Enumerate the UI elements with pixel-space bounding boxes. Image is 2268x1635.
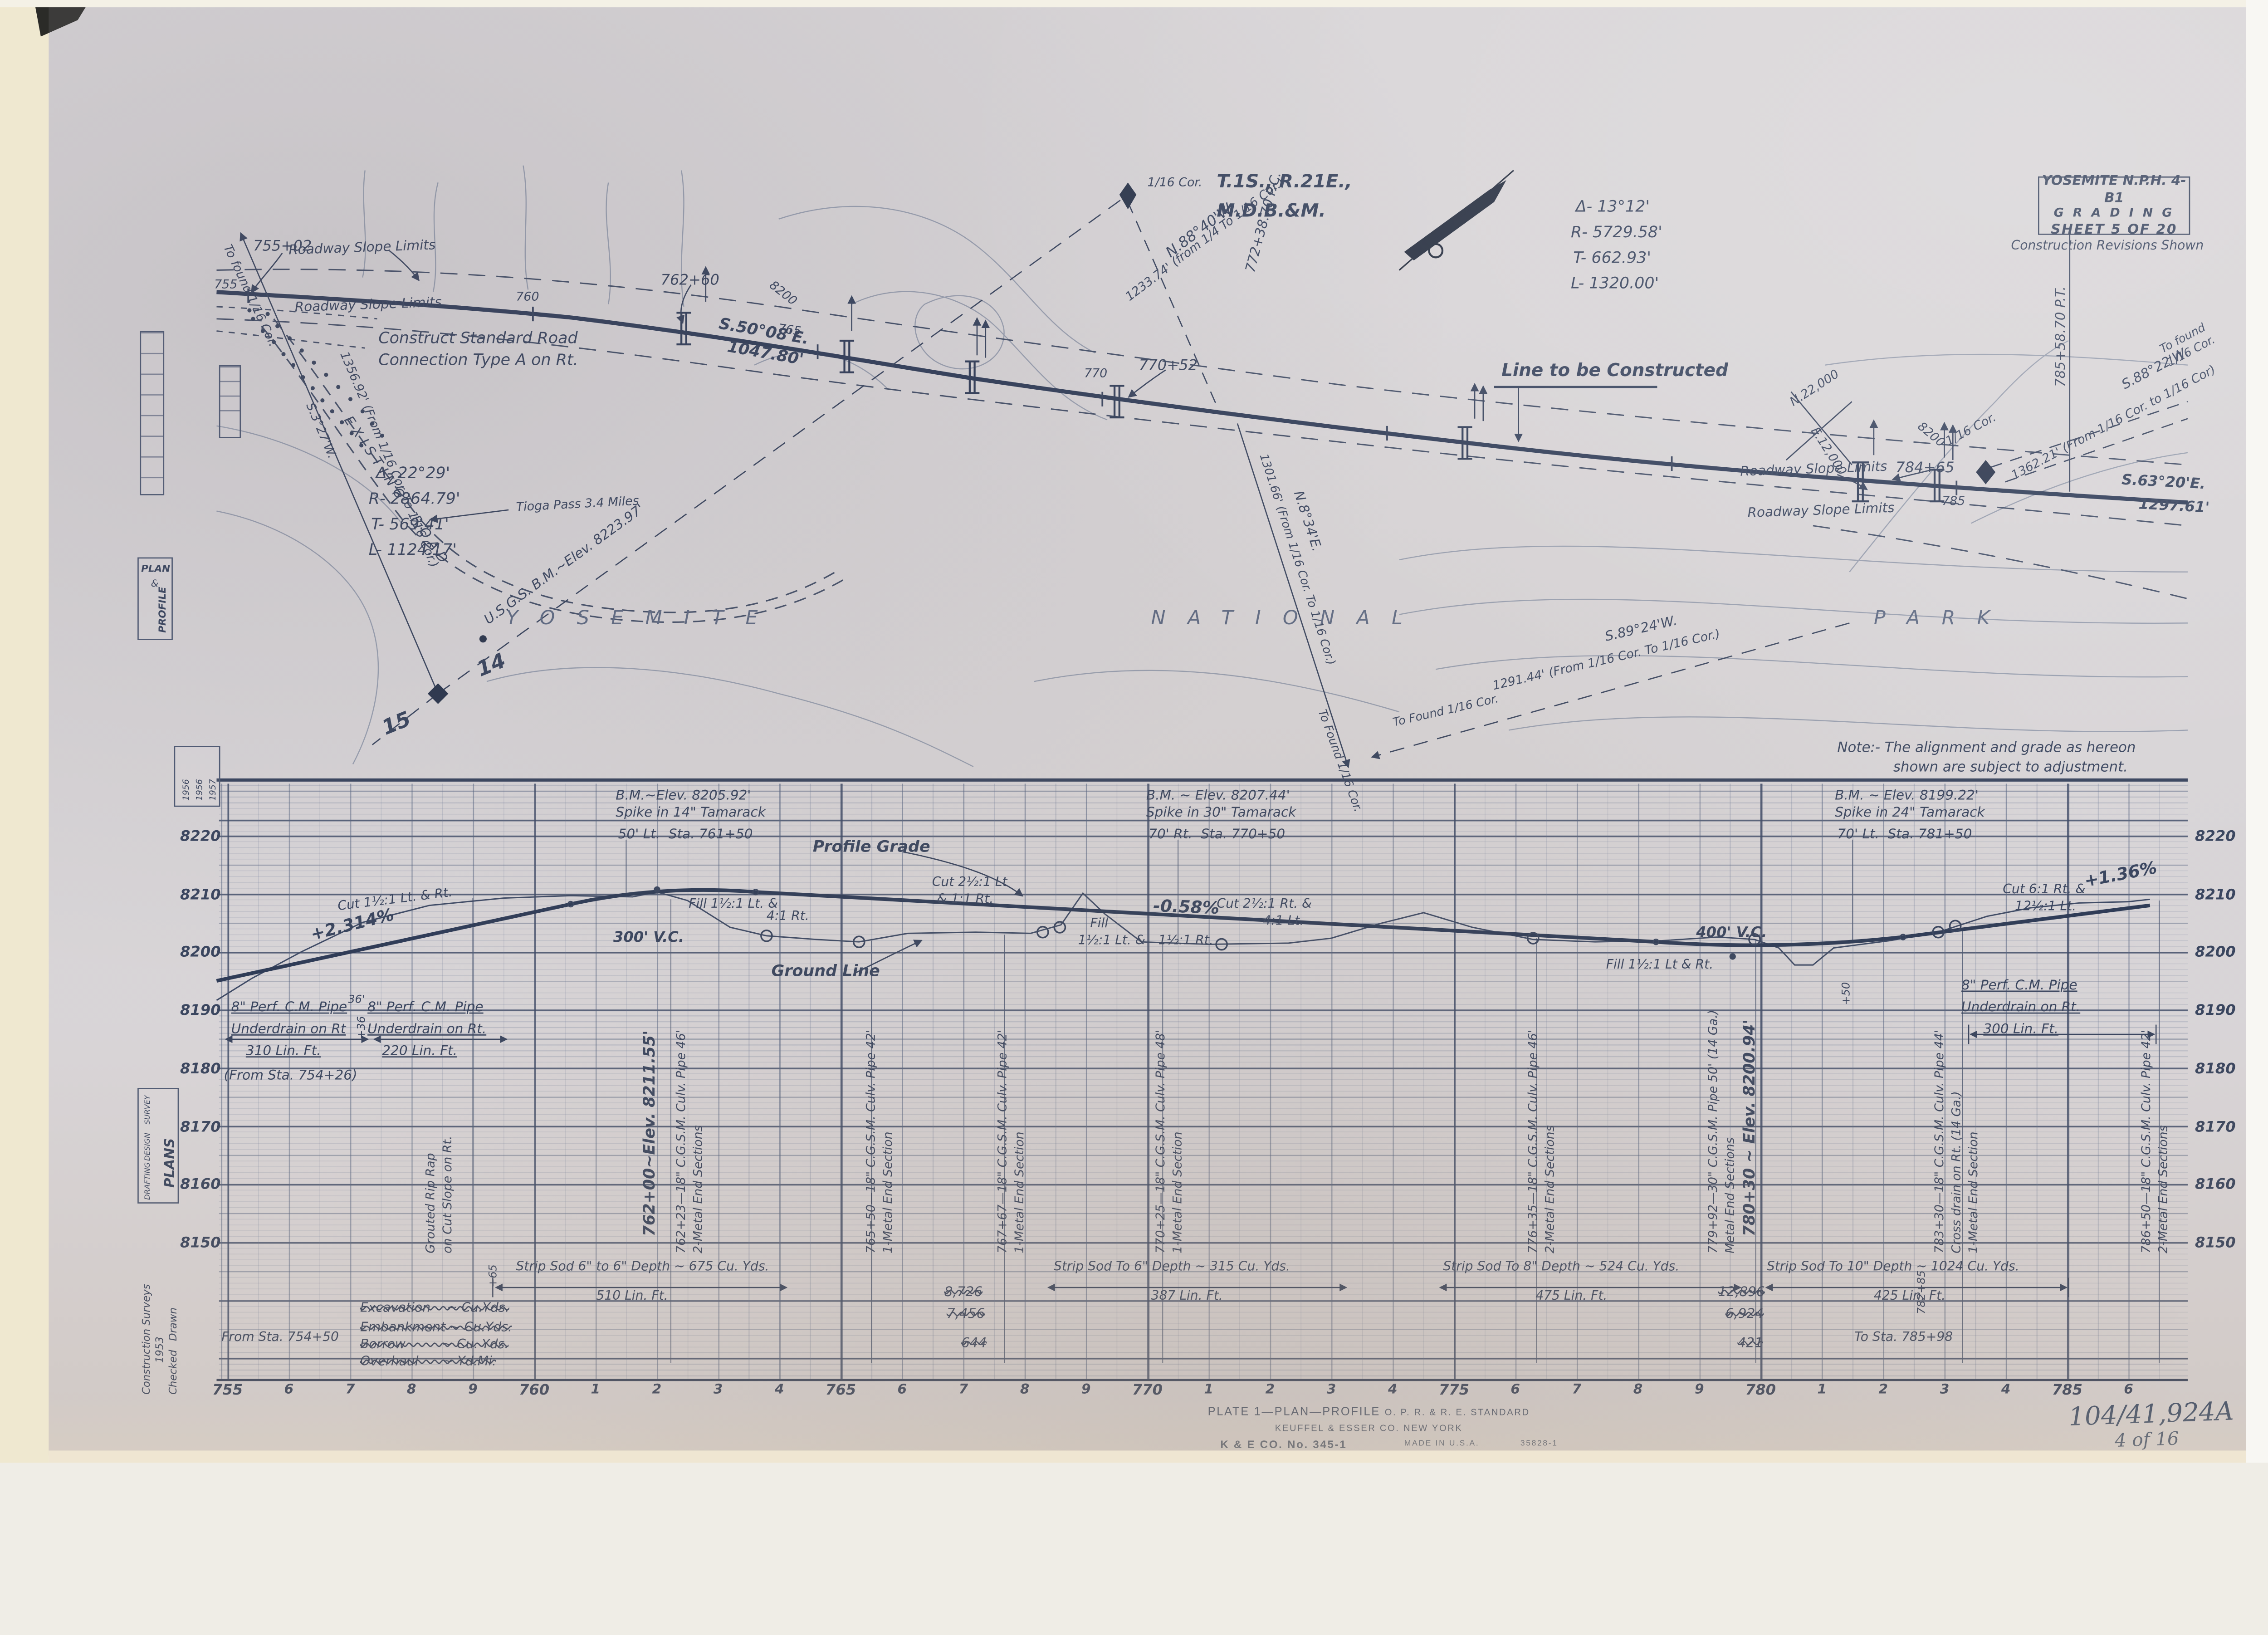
title-line-2: G R A D I N G: [2039, 206, 2189, 222]
sod3-2: 475 Lin. Ft.: [1535, 1290, 1607, 1303]
culv-783-3: 1-Metal End Section: [1969, 1131, 1981, 1253]
station-label-7: 7: [959, 1381, 968, 1397]
cut-773-2: 4:1 Lt.: [1263, 915, 1304, 929]
fill-763-2: 4:1 Rt.: [767, 910, 809, 924]
station-label-3: 3: [714, 1381, 723, 1397]
sta-770-52: 770+52: [1139, 358, 1198, 373]
cut-773-1: Cut 2½:1 Rt. &: [1217, 898, 1312, 912]
sod3-1: Strip Sod To 8" Depth ~ 524 Cu. Yds.: [1443, 1261, 1679, 1274]
annotation-arrows: [226, 852, 2156, 1297]
station-label-6: 6: [2124, 1381, 2133, 1397]
stamp-box: [219, 365, 241, 438]
note-line-2: shown are subject to adjustment.: [1893, 759, 2128, 774]
vc-300: 300' V.C.: [613, 930, 684, 945]
profile-culvert-station-lines: [473, 840, 2159, 1363]
station-label-765: 765: [826, 1381, 856, 1399]
station-label-775: 775: [1439, 1381, 1469, 1399]
curve2-r: R- 5729.58': [1571, 225, 1662, 242]
line-to-be-constructed: Line to be Constructed: [1501, 362, 1728, 381]
underdrain2-2: Underdrain on Rt.: [367, 1022, 486, 1036]
construction-year: 1953: [156, 1336, 166, 1363]
sod4-1: Strip Sod To 10" Depth ~ 1024 Cu. Yds.: [1767, 1261, 2019, 1274]
culv-767-1: 767+67—18" C.G.S.M. Culv. Pipe 42': [998, 1030, 1011, 1253]
sta-770-plan: 770: [1084, 369, 1107, 382]
riprap-1: Grouted Rip Rap: [426, 1153, 439, 1253]
tab-survey: SURVEY: [145, 1095, 152, 1124]
culv-786-2: 2-Metal End Sections: [2159, 1125, 2171, 1253]
station-label-2: 2: [1879, 1381, 1888, 1397]
qty-num-2: 7,456: [947, 1307, 985, 1321]
road-alignment: [216, 289, 2187, 503]
contour-lines: [216, 166, 2187, 767]
plate-name: PLATE 1—PLAN—PROFILE: [1208, 1405, 1380, 1419]
park-word-3: PARK: [1874, 608, 2012, 629]
elevation-label-8180: 8180: [180, 1060, 221, 1077]
cut-765-2: & 1:1 Rt.: [937, 893, 993, 907]
maker-line: KEUFFEL & ESSER CO. NEW YORK: [1217, 1423, 1521, 1434]
fill-763-1: Fill 1½:1 Lt. &: [689, 898, 778, 912]
station-label-3: 3: [1940, 1381, 1950, 1397]
elevation-label-8160: 8160: [2195, 1176, 2236, 1193]
tab-plan: PLAN: [141, 565, 170, 575]
elevation-label-8200: 8200: [180, 944, 221, 961]
underdrain2-1: 8" Perf. C.M. Pipe: [367, 1000, 484, 1014]
elevation-label-8190: 8190: [180, 1002, 221, 1019]
station-label-4: 4: [1388, 1381, 1398, 1397]
park-word-1: YOSEMITE: [506, 608, 780, 629]
pt-785-58-70: 785+58.70 P.T.: [2054, 286, 2068, 387]
culv-765-2: 1-Metal End Section: [883, 1131, 896, 1253]
qty-num-5: 6,924: [1725, 1307, 1764, 1321]
checked: Checked: [169, 1350, 180, 1395]
culv-770-2: 1-Metal End Section: [1173, 1131, 1186, 1253]
curve2-t: T- 662.93': [1573, 251, 1651, 268]
bm3-3: 70' Lt. Sta. 781+50: [1837, 827, 1972, 842]
bm2-2: Spike in 30" Tamarack: [1146, 806, 1296, 820]
bm3-2: Spike in 24" Tamarack: [1835, 806, 1984, 820]
product-line: K & E CO. No. 345-1: [1193, 1439, 1375, 1451]
tick-plus36: +36: [358, 1016, 369, 1039]
culv-779-2: Metal End Sections: [1725, 1137, 1738, 1253]
bm2-3: 70' Rt. Sta. 770+50: [1149, 827, 1285, 842]
underdrain3-3: 300 Lin. Ft.: [1983, 1022, 2058, 1036]
year-1: 1956: [182, 779, 191, 801]
station-label-1: 1: [1817, 1381, 1827, 1397]
sta-755-plan: 755: [214, 280, 237, 293]
elevation-label-8220: 8220: [2195, 827, 2236, 845]
tab-design: DESIGN: [145, 1133, 152, 1161]
sod2-2: 387 Lin. Ft.: [1151, 1290, 1223, 1303]
culv-762-elev: 762+00~Elev. 8211.55': [642, 1030, 659, 1236]
station-label-760: 760: [519, 1381, 549, 1399]
qty-num-1: 8,726: [944, 1285, 982, 1299]
riprap-2: on Cut Slope on Rt.: [443, 1136, 455, 1253]
sta-785-plan: 785: [1942, 496, 1965, 509]
underdrain3-1: 8" Perf. C.M. Pipe: [1961, 979, 2077, 993]
plate-title: PLATE 1—PLAN—PROFILE O. P. R. & R. E. ST…: [1168, 1405, 1569, 1419]
elevation-label-8150: 8150: [180, 1234, 221, 1251]
made-in: MADE IN U.S.A.: [1387, 1439, 1496, 1448]
sod2-1: Strip Sod To 6" Depth ~ 315 Cu. Yds.: [1054, 1261, 1290, 1274]
qty-borrow: Borrow ~ Cu. Yds.: [360, 1339, 508, 1352]
station-label-755: 755: [212, 1381, 243, 1399]
plan-profile-sheet: YOSEMITE N.P.H. 4-B1 G R A D I N G SHEET…: [0, 0, 2268, 1463]
culv-786-1: 786+50—18" C.G.S.M. Culv. Pipe 42': [2141, 1030, 2154, 1253]
sta-762-60: 762+60: [661, 273, 719, 288]
underdrain1-2: Underdrain on Rt: [231, 1022, 346, 1036]
station-label-1: 1: [1204, 1381, 1213, 1397]
to-sta: To Sta. 785+98: [1854, 1331, 1953, 1345]
station-label-785: 785: [2052, 1381, 2082, 1399]
curve1-r: R- 2864.79': [369, 492, 460, 509]
station-label-4: 4: [2001, 1381, 2011, 1397]
elevation-label-8210: 8210: [180, 886, 221, 903]
elevation-label-8220: 8220: [180, 827, 221, 845]
cut-785-2: 12½:1 Lt.: [2015, 901, 2076, 914]
sta-760-plan: 760: [516, 292, 539, 305]
station-label-9: 9: [468, 1381, 478, 1397]
station-label-2: 2: [1266, 1381, 1275, 1397]
elevation-label-8160: 8160: [180, 1176, 221, 1193]
fill-769-1: Fill: [1090, 918, 1108, 931]
construction-note: Construction Surveys: [142, 1284, 153, 1395]
title-subtitle: Construction Revisions Shown: [2010, 239, 2204, 253]
culv-780-elev: 780+30 ~ Elev. 8200.94': [1742, 1019, 1759, 1236]
culv-776-1: 776+35—18" C.G.S.M. Culv. Pipe 46': [1528, 1030, 1541, 1253]
station-label-8: 8: [1633, 1381, 1643, 1397]
culv-783-2: Cross drain on Rt. (14 Ga.): [1952, 1091, 1965, 1253]
tab-drafting: DRAFTING: [145, 1162, 152, 1200]
station-label-8: 8: [1020, 1381, 1030, 1397]
ground-line-label: Ground Line: [772, 964, 880, 980]
section-lines: [241, 195, 2188, 767]
elevation-label-8170: 8170: [2195, 1118, 2236, 1135]
construct-note-1: Construct Standard Road: [378, 331, 577, 348]
fill-777: Fill 1½:1 Lt & Rt.: [1606, 959, 1713, 973]
year-3: 1957: [209, 779, 218, 801]
sta-784-65: 784+65: [1896, 460, 1954, 475]
vc-400: 400' V.C.: [1696, 925, 1767, 940]
bm1-1: B.M.~Elev. 8205.92': [616, 788, 751, 803]
note-line-1: Note:- The alignment and grade as hereon: [1837, 740, 2136, 754]
qty-embankment: Embankment ~ Cu.Yds.: [360, 1322, 512, 1335]
plan-leaders: [252, 251, 1932, 520]
tab-profile: PROFILE: [158, 587, 169, 632]
dist-1297: 1297.61': [2138, 496, 2210, 515]
sheet-linework: [0, 0, 2268, 1463]
title-line-3: SHEET 5 OF 20: [2039, 222, 2189, 239]
title-line-1: YOSEMITE N.P.H. 4-B1: [2039, 173, 2189, 206]
profile-grade-label: Profile Grade: [813, 840, 930, 857]
culv-762-2: 2-Metal End Sections: [694, 1125, 706, 1253]
station-label-7: 7: [346, 1381, 355, 1397]
fill-769-2: 1½:1 Lt. &: [1078, 935, 1145, 948]
underdrain1-4: (From Sta. 754+26): [224, 1068, 357, 1082]
cut-765-1: Cut 2½:1 Lt: [932, 876, 1007, 890]
park-word-2: NATIONAL: [1151, 608, 1425, 629]
qty-num-6: 421: [1737, 1336, 1763, 1350]
elevation-label-8190: 8190: [2195, 1002, 2236, 1019]
sheet-id-page: 4 of 16: [2114, 1428, 2179, 1452]
scan-bottom-edge: [49, 1450, 2246, 1463]
qty-num-3: 644: [961, 1336, 987, 1350]
plate-standard: O. P. R. & R. E. STANDARD: [1385, 1407, 1530, 1418]
curve2-l: L- 1320.00': [1571, 276, 1659, 293]
station-label-6: 6: [284, 1381, 294, 1397]
culv-765-1: 765+50—18" C.G.S.M. Culv. Pipe 42': [866, 1030, 879, 1253]
qty-excavation: Excavation ~ Cu.Yds.: [360, 1302, 509, 1316]
bm2-1: B.M. ~ Elev. 8207.44': [1146, 788, 1290, 803]
culv-767-2: 1-Metal End Section: [1015, 1131, 1027, 1253]
station-label-3: 3: [1327, 1381, 1336, 1397]
from-sta: From Sta. 754+50: [221, 1331, 339, 1345]
culv-776-2: 2-Metal End Sections: [1545, 1125, 1558, 1253]
sheet-id-number: 104/41,924A: [2068, 1396, 2234, 1431]
station-label-9: 9: [1695, 1381, 1704, 1397]
drawn: Drawn: [169, 1307, 180, 1341]
elevation-label-8180: 8180: [2195, 1060, 2236, 1077]
curve1-l: L- 1124.17': [369, 543, 457, 559]
culv-762-1: 762+23—18" C.G.S.M. Culv. Pipe 46': [676, 1030, 689, 1253]
slope-limit-lines: [216, 269, 2187, 599]
north-arrow-mark: [1399, 171, 1514, 270]
station-label-6: 6: [897, 1381, 907, 1397]
underdrain2-0: 36': [348, 995, 365, 1007]
station-label-8: 8: [407, 1381, 416, 1397]
tick-plus50: +50: [1842, 982, 1853, 1005]
bm1-3: 50' Lt. Sta. 761+50: [618, 827, 753, 842]
station-label-2: 2: [652, 1381, 662, 1397]
elevation-label-8170: 8170: [180, 1118, 221, 1135]
revision-box: [140, 331, 164, 495]
tab-plans: PLANS: [163, 1138, 177, 1188]
station-label-780: 780: [1745, 1381, 1776, 1399]
curve2-delta: Δ- 13°12': [1576, 200, 1650, 216]
station-label-7: 7: [1572, 1381, 1582, 1397]
cut-785-1: Cut 6:1 Rt. &: [2003, 883, 2085, 897]
bm3-1: B.M. ~ Elev. 8199.22': [1835, 788, 1979, 803]
station-label-1: 1: [591, 1381, 600, 1397]
fill-769-3: 1½:1 Rt.: [1158, 935, 1213, 948]
title-block: YOSEMITE N.P.H. 4-B1 G R A D I N G SHEET…: [2038, 176, 2190, 235]
product-code: 35828-1: [1496, 1439, 1582, 1448]
station-label-4: 4: [775, 1381, 784, 1397]
underdrain3-2: Underdrain on Rt.: [1961, 1000, 2080, 1014]
sod1-1: Strip Sod 6" to 6" Depth ~ 675 Cu. Yds.: [516, 1261, 769, 1274]
underdrain1-1: 8" Perf. C.M. Pipe: [231, 1000, 347, 1014]
elevation-label-8200: 8200: [2195, 944, 2236, 961]
qty-num-4: 12,896: [1718, 1285, 1765, 1299]
station-label-770: 770: [1132, 1381, 1163, 1399]
underdrain2-3: 220 Lin. Ft.: [382, 1044, 457, 1058]
elevation-label-8150: 8150: [2195, 1234, 2236, 1251]
grade-minus-058: -0.58%: [1153, 898, 1220, 918]
station-label-6: 6: [1510, 1381, 1520, 1397]
underdrain1-3: 310 Lin. Ft.: [246, 1044, 321, 1058]
sod1-2: 510 Lin. Ft.: [596, 1290, 668, 1303]
year-2: 1956: [196, 779, 205, 801]
tick-plus65: +65: [489, 1264, 500, 1287]
sod4-2: 425 Lin. Ft.: [1874, 1290, 1945, 1303]
cor-sixteenth-top: 1/16 Cor.: [1148, 178, 1202, 191]
station-label-9: 9: [1081, 1381, 1091, 1397]
curve1-delta: Δ- 22°29': [376, 466, 450, 483]
bm1-2: Spike in 14" Tamarack: [616, 806, 765, 820]
curve1-t: T- 569.41': [371, 517, 449, 534]
culv-783-1: 783+30—18" C.G.S.M. Culv. Pipe 44': [1935, 1030, 1947, 1253]
construct-note-2: Connection Type A on Rt.: [378, 353, 578, 370]
qty-overhaul: Overhaul ~ Yd.Mi.: [360, 1356, 496, 1369]
culv-779-1: 779+92—30" C.G.S.M. Pipe 50' (14 Ga.): [1708, 1010, 1721, 1253]
culv-770-1: 770+25—18" C.G.S.M. Culv. Pipe 48': [1156, 1030, 1168, 1253]
elevation-label-8210: 8210: [2195, 886, 2236, 903]
